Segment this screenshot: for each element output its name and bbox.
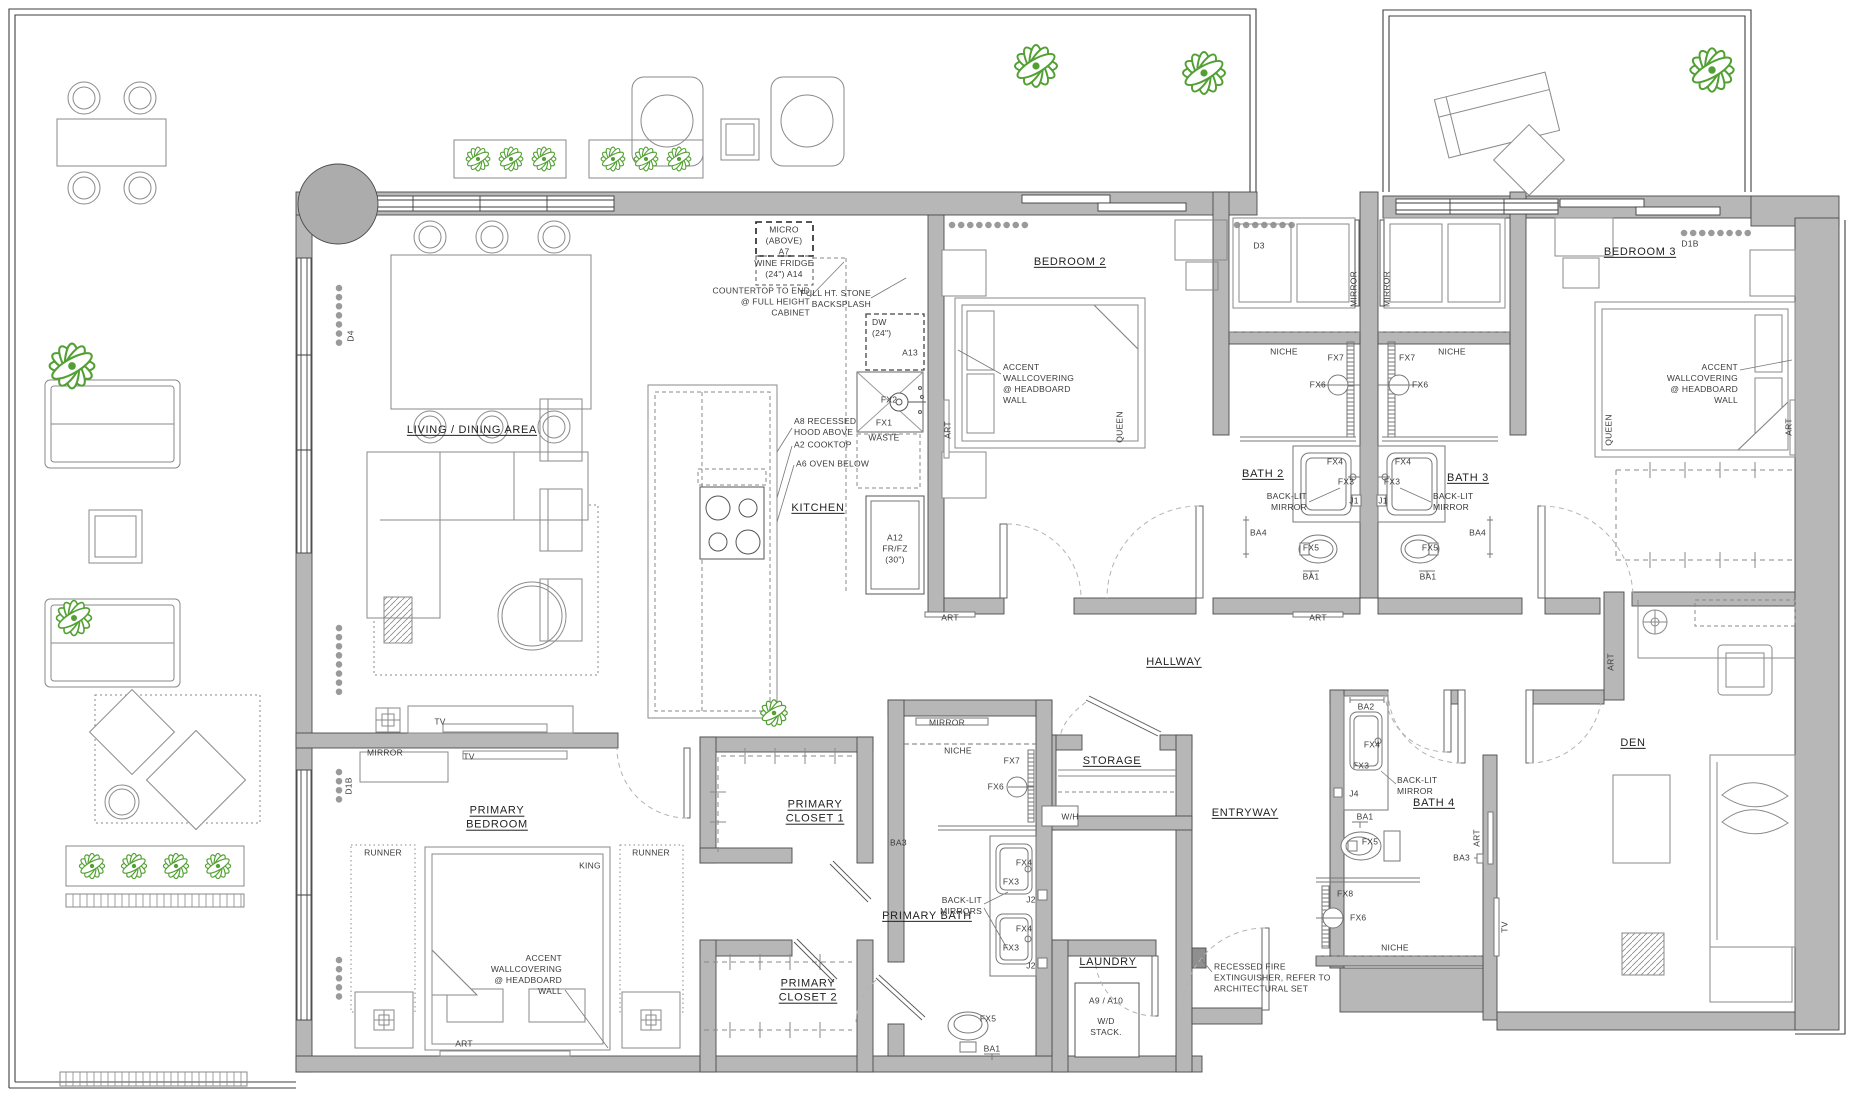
structural-column — [298, 164, 378, 244]
slider-door-d1b — [1560, 199, 1644, 207]
den-furniture — [1613, 600, 1795, 1002]
dining-set — [391, 221, 591, 443]
fire-extinguisher-box — [1192, 948, 1206, 968]
coffee-table — [498, 582, 566, 650]
terrace-rug-tables — [90, 690, 260, 830]
primary-bedroom-furniture — [351, 845, 683, 1056]
terrace-outline — [9, 9, 1845, 1088]
terrace-dining-set — [57, 82, 166, 204]
terrace-lounges — [45, 380, 180, 687]
kitchen-island — [648, 385, 777, 718]
primary-tv — [360, 751, 567, 782]
floor-plan-drawing — [0, 0, 1859, 1103]
ottoman — [384, 597, 412, 643]
closet-rods — [704, 748, 852, 1038]
top-right-terrace-furniture — [1434, 72, 1564, 195]
floor-plan-page: LIVING / DINING AREAKITCHENBEDROOM 2BEDR… — [0, 0, 1859, 1103]
slider-door-d3 — [1022, 195, 1110, 203]
terrace-planter-box — [60, 846, 247, 1086]
tv-console — [376, 706, 573, 733]
kitchen-counter — [756, 222, 926, 594]
